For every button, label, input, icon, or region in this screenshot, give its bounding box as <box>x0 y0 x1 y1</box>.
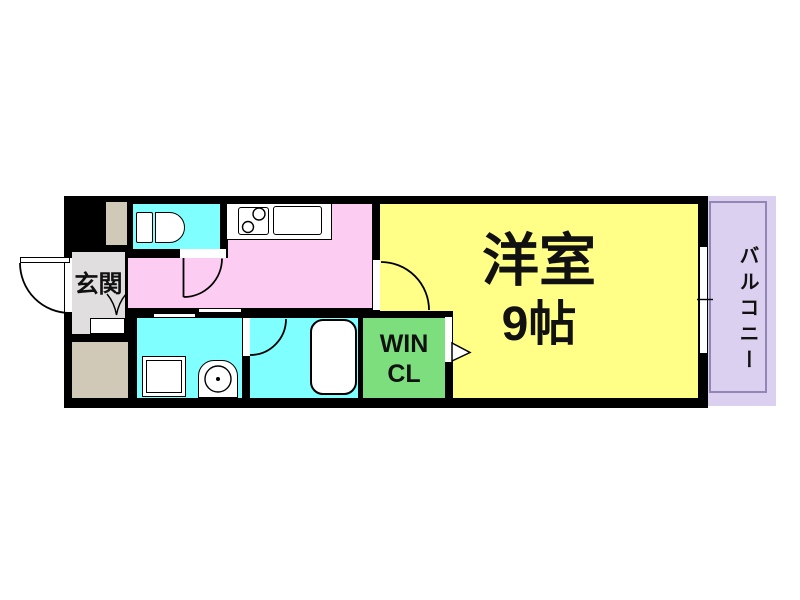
main-room-name-label: 洋室 <box>380 232 698 292</box>
vanity-sink <box>198 360 238 398</box>
pipe-shaft-vent <box>106 202 127 245</box>
main-room-size-label: 9帖 <box>380 300 698 350</box>
toilet-tank <box>136 212 153 243</box>
toilet-door-opening <box>180 249 226 258</box>
kitchen-sink <box>273 206 322 235</box>
entrance-door-leaf <box>20 257 70 263</box>
toilet-bowl <box>155 212 185 243</box>
closet-label-line2: CL <box>363 361 445 387</box>
stove-burner-unit <box>238 207 269 235</box>
kitchen-door-opening <box>373 260 380 310</box>
bathroom-door-leaf <box>243 318 250 356</box>
balcony-window <box>700 247 707 353</box>
kitchen-area-lower <box>128 258 228 308</box>
balcony-label: バルコニー <box>729 227 757 392</box>
entrance-step <box>90 318 125 334</box>
washroom-sliding-door-leaf-left <box>153 313 196 318</box>
bathtub <box>310 319 357 395</box>
entrance-door-opening <box>65 258 72 312</box>
entrance-door-swing-arc <box>20 263 70 313</box>
floor-plan: 玄関 WIN CL 洋室 9帖 バルコニー <box>0 0 800 600</box>
washroom-sliding-door-leaf-right <box>198 308 242 313</box>
meter-box <box>72 342 128 398</box>
washer-pan-inner <box>146 360 182 393</box>
entrance-label: 玄関 <box>72 272 125 297</box>
